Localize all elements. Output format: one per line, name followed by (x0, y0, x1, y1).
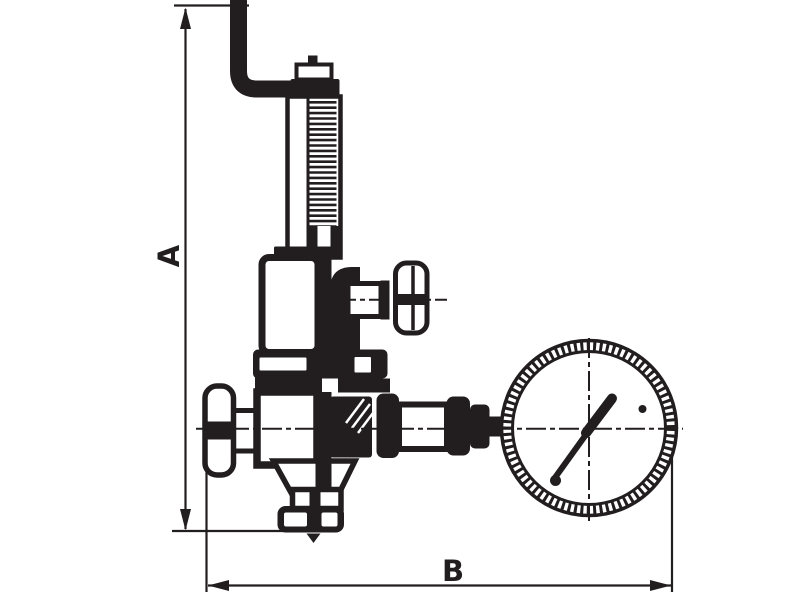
dial-mark-dot (639, 405, 647, 413)
flange-window-left (260, 358, 307, 371)
valve-dimension-diagram: A B (0, 0, 800, 598)
adjusting-screw-cap (297, 65, 332, 80)
outlet-neck-stem (310, 487, 321, 509)
needle-counterweight (550, 475, 561, 486)
flow-arrow-down-icon (307, 534, 321, 544)
union-nut-right (447, 397, 471, 456)
connection-pipe (399, 405, 447, 450)
dim-a-label: A (152, 244, 186, 267)
inlet-handwheel-hub (207, 422, 232, 440)
dim-a-arrow-down-icon (180, 509, 191, 531)
gauge-coupling (470, 405, 490, 449)
flange-window-right (355, 357, 372, 373)
gauge-connection (330, 394, 504, 459)
drawing-stage: A B (0, 0, 800, 598)
outlet-flange-window-left (284, 513, 307, 527)
sensing-pipe-elbow (239, 0, 297, 89)
dim-b-label: B (442, 554, 464, 588)
outlet-boss (330, 397, 372, 458)
cap-nub (308, 56, 318, 67)
body-neck-band-right (338, 379, 390, 393)
adjuster-stem (308, 226, 318, 247)
dim-a-arrow-up-icon (180, 8, 191, 30)
adjuster-stem-edge (331, 226, 340, 247)
bonnet-assembly (262, 256, 427, 354)
outlet-flange-window-right (322, 513, 338, 527)
dim-b-arrow-left-icon (208, 580, 229, 591)
center-column (316, 256, 332, 354)
bonnet-chamber (262, 258, 318, 353)
dim-b-arrow-right-icon (650, 580, 671, 591)
union-nut-left (377, 394, 400, 459)
